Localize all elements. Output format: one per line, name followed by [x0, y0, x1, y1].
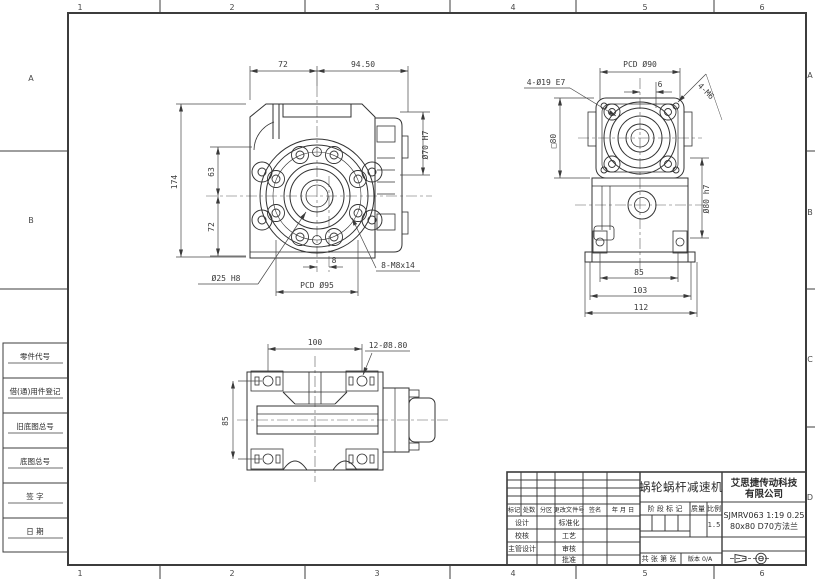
- role-design: 设计: [515, 518, 529, 527]
- front-dim-94-50: 94.50: [351, 60, 375, 69]
- mass-header: 质量: [691, 504, 705, 513]
- front-dim-offset: 8: [332, 256, 337, 265]
- side-dim-pcd90: PCD Ø90: [623, 59, 657, 69]
- zone-col-2-top: 2: [229, 3, 234, 12]
- front-dim-174: 174: [170, 175, 179, 190]
- zone-row-b-right: B: [807, 208, 813, 217]
- side-dim-103: 103: [633, 286, 648, 295]
- front-dim-pcd: PCD Ø95: [300, 280, 334, 290]
- front-dim-tapped-holes: 8-M8x14: [381, 261, 415, 270]
- rev-col-date: 年 月 日: [612, 506, 635, 514]
- company-name-line2: 有限公司: [745, 488, 783, 500]
- left-block-label-part-code: 零件代号: [20, 351, 50, 361]
- front-dim-72-left: 72: [207, 222, 216, 232]
- zone-col-3-bottom: 3: [374, 569, 379, 578]
- side-dim-tapped: 4-M6: [696, 81, 716, 101]
- left-block-label-base-no: 底图总号: [20, 456, 50, 466]
- rev-col-sign: 签名: [589, 506, 601, 514]
- bottom-dim-holes: 12-Ø8.80: [369, 340, 408, 350]
- left-block-label-date: 日 期: [26, 527, 43, 536]
- side-dim-112: 112: [634, 303, 649, 312]
- zone-col-6-bottom: 6: [759, 569, 764, 578]
- left-block-label-signature: 签 字: [26, 491, 43, 501]
- part-name: 蜗轮蜗杆减速机: [639, 480, 723, 494]
- role-standardization: 标准化: [559, 518, 580, 527]
- bottom-dim-100: 100: [308, 338, 323, 347]
- left-title-block: [3, 343, 68, 552]
- role-process: 工艺: [562, 532, 576, 540]
- bottom-view: 100 12-Ø8.80 85: [221, 338, 448, 482]
- zone-col-5-top: 5: [642, 3, 647, 12]
- side-dim-corner-holes: 4-Ø19 E7: [527, 77, 566, 87]
- side-dim-6: 6: [658, 80, 663, 89]
- bottom-dim-85: 85: [221, 416, 230, 426]
- side-view-dimensions: [524, 68, 722, 317]
- rev-col-doc: 更改文件号: [554, 506, 585, 514]
- zone-col-3-top: 3: [374, 3, 379, 12]
- zone-col-4-top: 4: [510, 3, 515, 12]
- rev-col-mark: 标记: [508, 506, 520, 514]
- rev-col-count: 处数: [523, 506, 536, 514]
- zone-col-5-bottom: 5: [642, 569, 647, 578]
- zone-col-2-bottom: 2: [229, 569, 234, 578]
- engineering-drawing-svg: 1 2 3 4 5 6 1 2 3 4 5 6 A B A B C D 零件代号…: [0, 0, 815, 579]
- rev-col-zone: 分区: [540, 506, 552, 514]
- drawing-code-line2: 80x80 D70方法兰: [730, 521, 798, 531]
- front-view: 72 94.50 174 63 72 Ø70 H7 Ø25 H8 PCD Ø95…: [170, 60, 432, 296]
- role-audit: 审核: [562, 544, 576, 553]
- front-dim-63: 63: [207, 167, 216, 177]
- front-dim-bore: Ø25 H8: [212, 273, 241, 283]
- role-chief-design: 主管设计: [508, 544, 536, 553]
- projection-symbol: [730, 553, 769, 563]
- bottom-view-centerlines: [237, 356, 448, 482]
- left-block-label-borrowed: 借(通)用件登记: [10, 386, 61, 396]
- stage-header: 阶 段 标 记: [648, 504, 683, 513]
- side-dim-square80: □80: [549, 134, 558, 149]
- zone-col-6-top: 6: [759, 3, 764, 12]
- zone-row-c-right: C: [807, 355, 813, 364]
- zone-col-1-bottom: 1: [77, 569, 82, 578]
- role-check: 校核: [515, 531, 529, 540]
- zone-row-d-right: D: [807, 493, 813, 502]
- left-block-label-old-base-no: 旧底图总号: [16, 421, 54, 431]
- zone-col-4-bottom: 4: [510, 569, 515, 578]
- zone-row-a-right: A: [807, 71, 813, 80]
- side-dim-85: 85: [634, 268, 644, 277]
- bottom-view-outline: [247, 371, 435, 470]
- zone-row-b-left: B: [28, 216, 34, 225]
- role-approve: 批准: [562, 555, 576, 564]
- front-dim-72-top: 72: [278, 60, 288, 69]
- drawing-sheet: 1 2 3 4 5 6 1 2 3 4 5 6 A B A B C D 零件代号…: [0, 0, 815, 579]
- drawing-code-line1: SJMRV063 1:19 0.25: [723, 511, 804, 520]
- scale-header: 比例: [707, 504, 721, 513]
- sheet-count-info: 共 张 第 张: [642, 554, 677, 563]
- side-dim-spigot80: Ø80 h7: [701, 184, 711, 213]
- side-view-centerlines: [575, 78, 705, 272]
- version-info: 版本 0/A: [688, 555, 713, 563]
- side-view: PCD Ø90 6 4-Ø19 E7 4-M6 □80 Ø80 h7 85 10…: [524, 59, 722, 317]
- left-title-block-labels: 零件代号 借(通)用件登记 旧底图总号 底图总号 签 字 日 期: [10, 351, 61, 536]
- zone-col-1-top: 1: [77, 3, 82, 12]
- scale-value: 1.5: [708, 521, 721, 529]
- company-name-line1: 艾思捷传动科技: [731, 477, 798, 489]
- front-dim-input-dia: Ø70 H7: [420, 130, 430, 159]
- zone-row-a-left: A: [28, 74, 34, 83]
